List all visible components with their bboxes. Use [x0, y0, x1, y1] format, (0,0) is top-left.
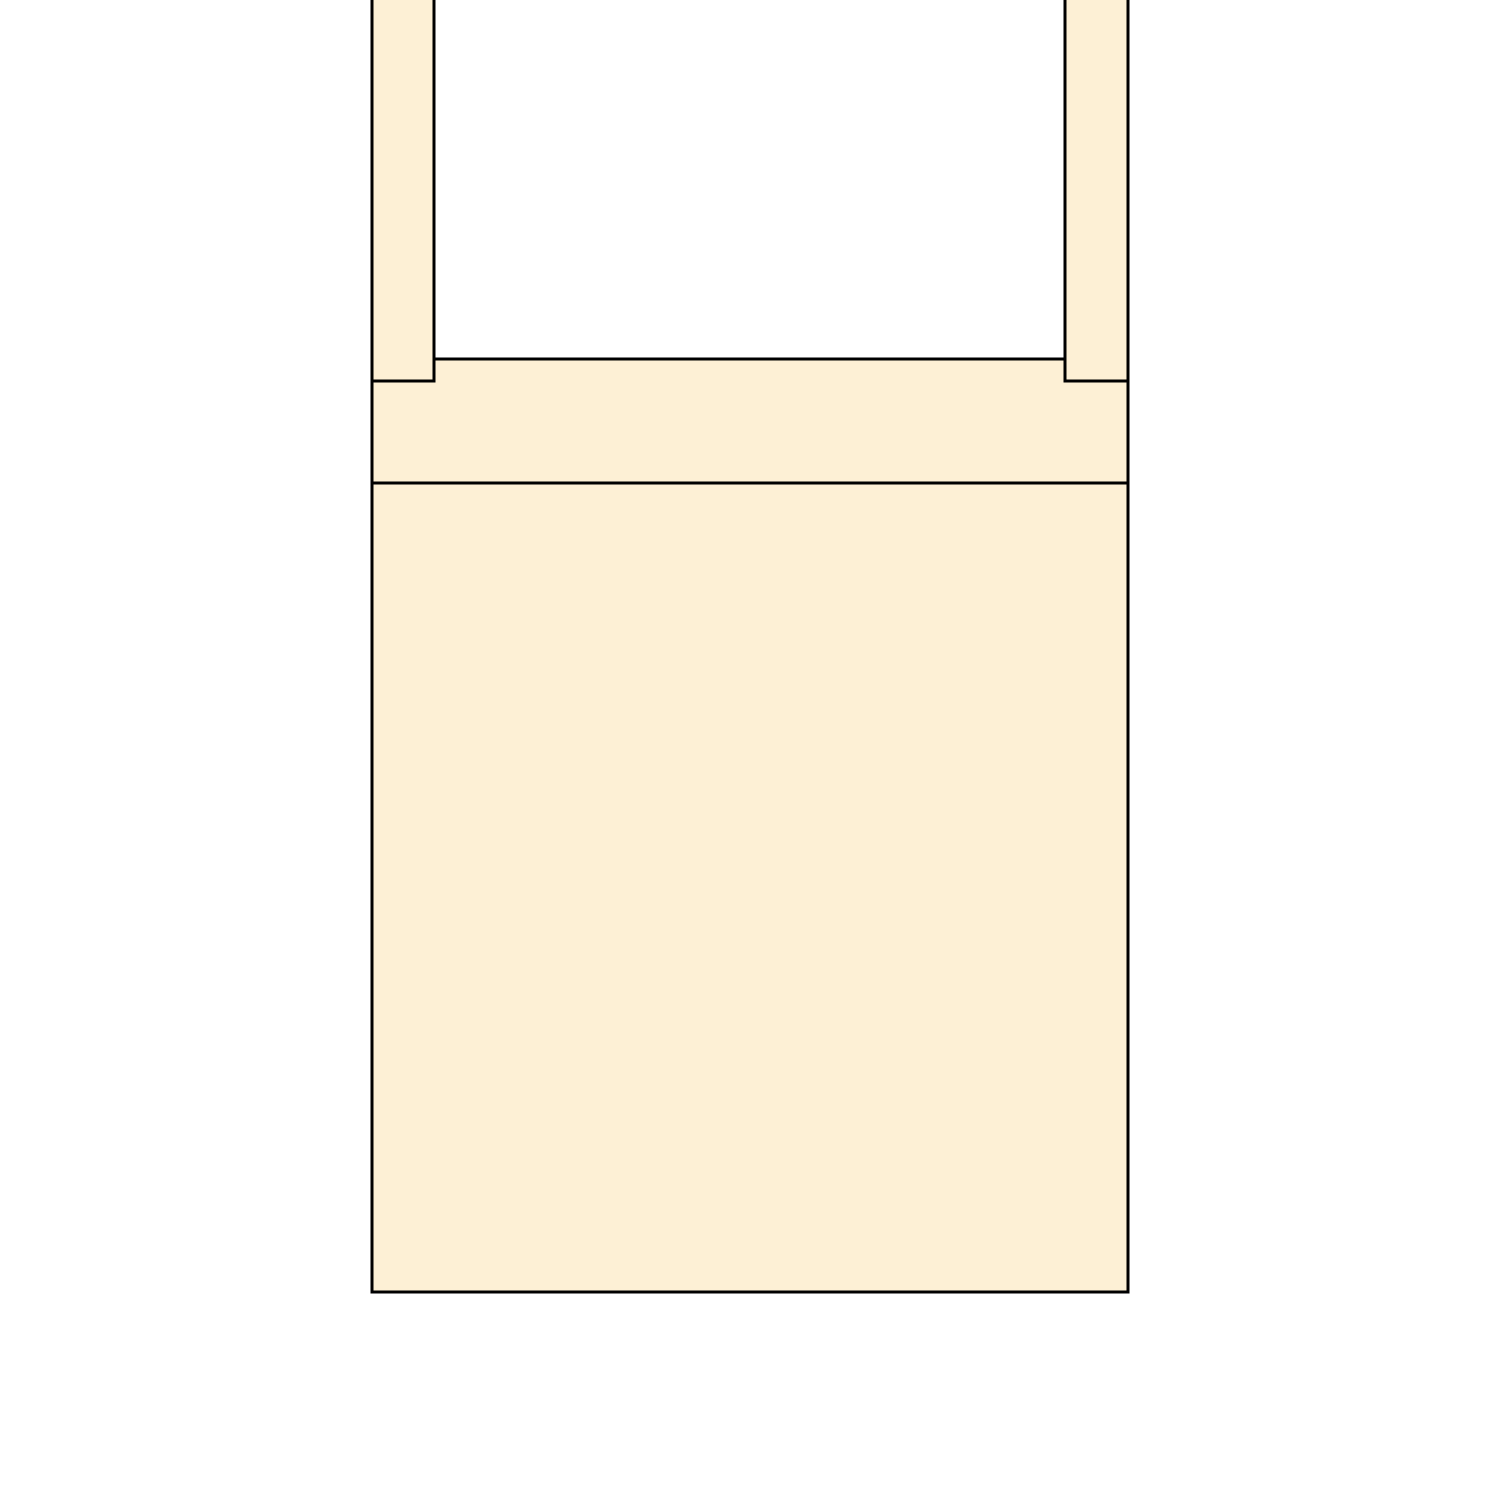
diagram-canvas [0, 0, 1501, 1501]
cross-rail [372, 359, 1128, 483]
right-post [1065, 0, 1128, 381]
lower-panel [372, 483, 1128, 1292]
diagram-page [0, 0, 1501, 1501]
left-post [372, 0, 434, 381]
